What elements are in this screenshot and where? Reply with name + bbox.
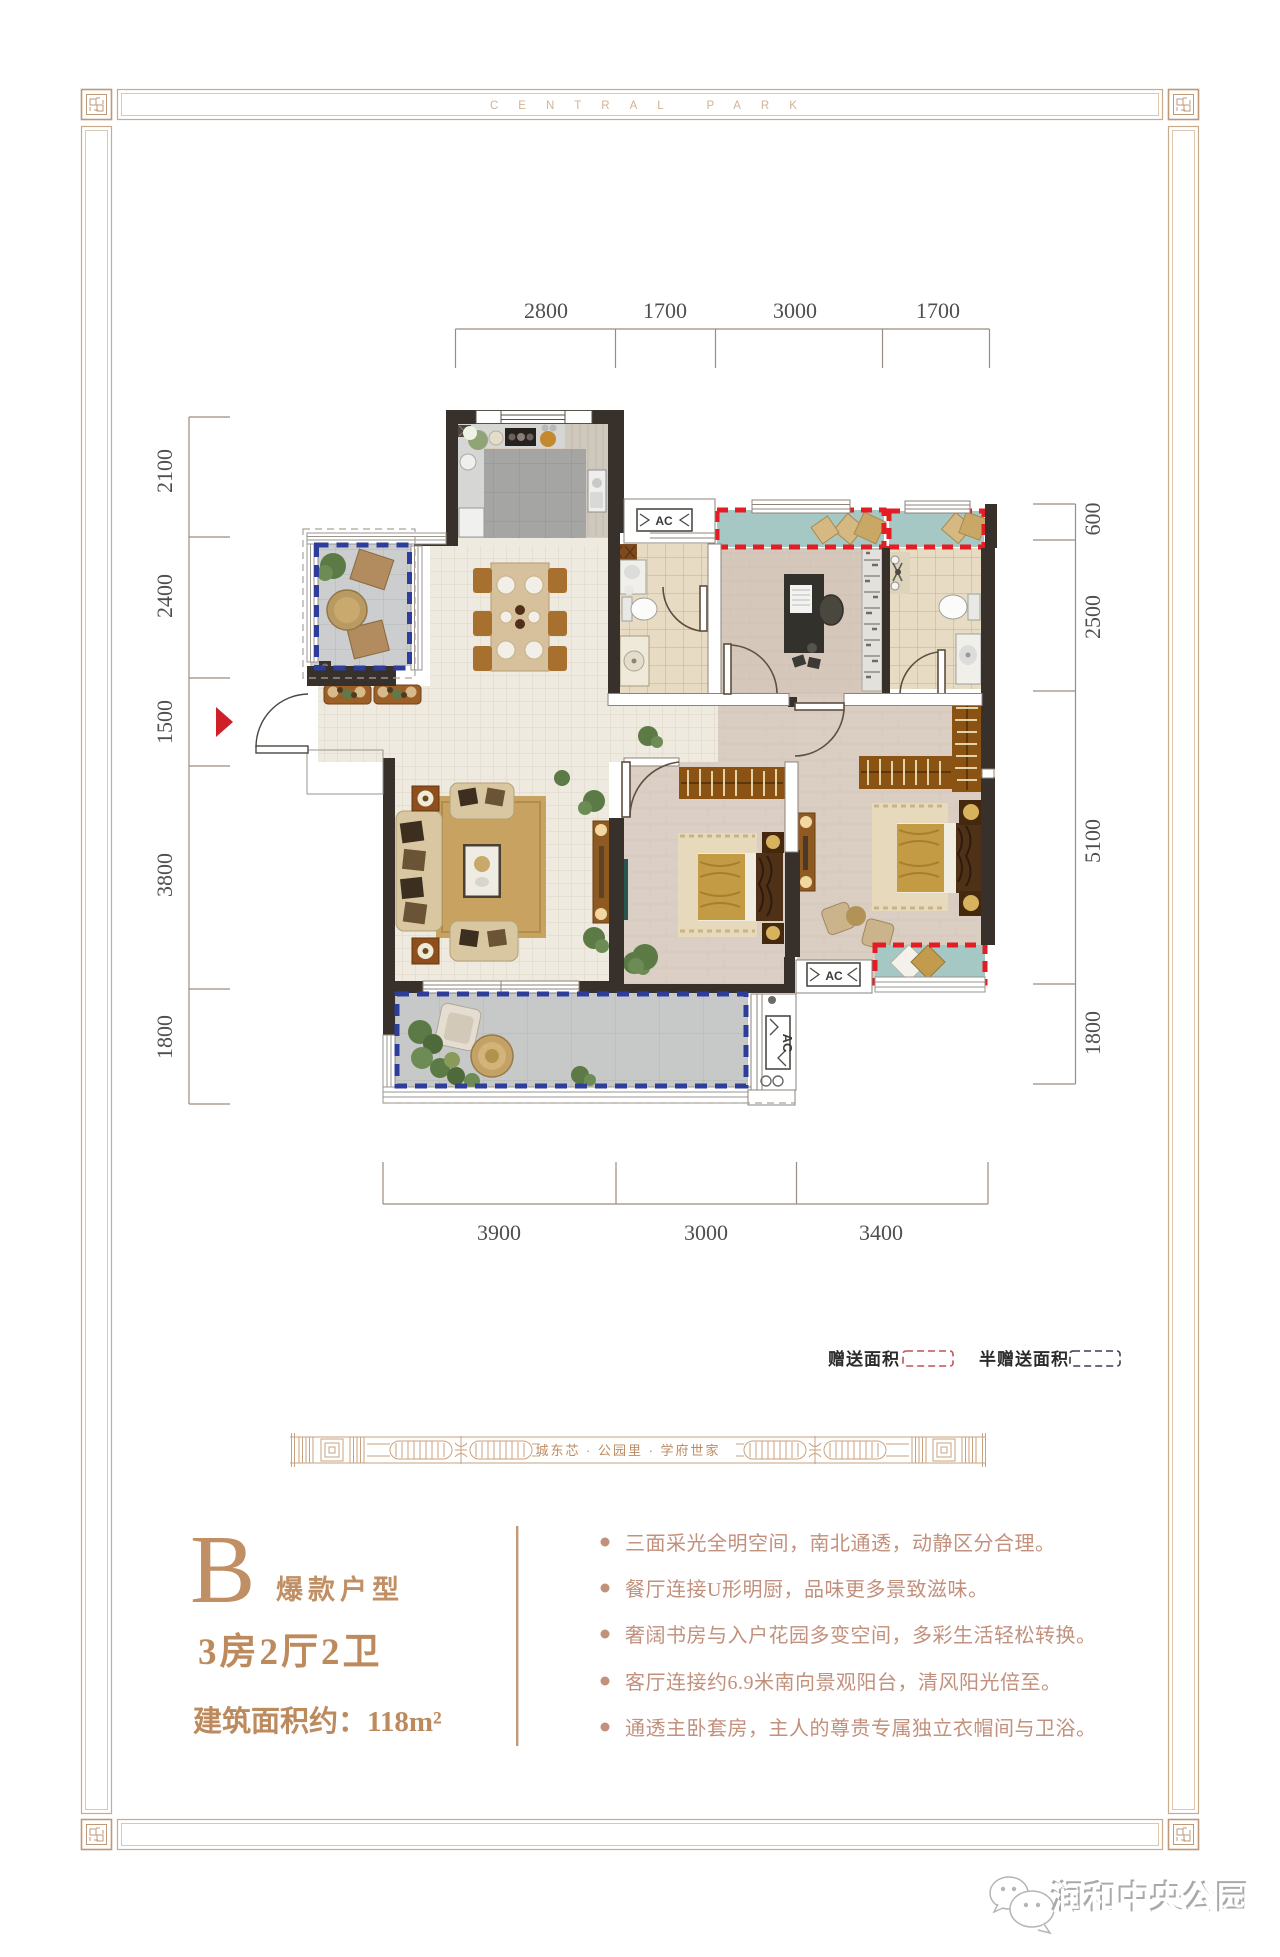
svg-text:三面采光全明空间，南北通透，动静区分合理。: 三面采光全明空间，南北通透，动静区分合理。	[625, 1532, 1056, 1555]
svg-text:爆款户型: 爆款户型	[276, 1574, 404, 1605]
svg-text:3000: 3000	[773, 298, 817, 323]
svg-text:城东芯 · 公园里 · 学府世家: 城东芯 · 公园里 · 学府世家	[535, 1443, 720, 1458]
svg-text:5100: 5100	[1080, 819, 1105, 863]
svg-text:1700: 1700	[643, 298, 687, 323]
svg-text:3800: 3800	[152, 853, 177, 897]
svg-text:AC: AC	[825, 969, 843, 983]
svg-text:600: 600	[1080, 503, 1105, 536]
svg-text:赠送面积: 赠送面积	[828, 1349, 900, 1369]
svg-text:2100: 2100	[152, 449, 177, 493]
svg-text:3房2厅2卫: 3房2厅2卫	[198, 1631, 383, 1673]
svg-text:CENTRAL PARK: CENTRAL PARK	[490, 100, 817, 112]
svg-text:1500: 1500	[152, 700, 177, 744]
svg-text:1700: 1700	[916, 298, 960, 323]
svg-text:润和中央公园: 润和中央公园	[1052, 1880, 1250, 1917]
svg-text:3000: 3000	[684, 1220, 728, 1245]
svg-text:3400: 3400	[859, 1220, 903, 1245]
svg-text:AC: AC	[655, 514, 673, 528]
svg-text:2500: 2500	[1080, 595, 1105, 639]
svg-text:餐厅连接U形明厨，品味更多景致滋味。: 餐厅连接U形明厨，品味更多景致滋味。	[625, 1578, 988, 1601]
svg-text:3900: 3900	[477, 1220, 521, 1245]
svg-text:半赠送面积: 半赠送面积	[979, 1349, 1069, 1369]
svg-text:客厅连接约6.9米南向景观阳台，清风阳光倍至。: 客厅连接约6.9米南向景观阳台，清风阳光倍至。	[625, 1671, 1062, 1694]
svg-text:奢阔书房与入户花园多变空间，多彩生活轻松转换。: 奢阔书房与入户花园多变空间，多彩生活轻松转换。	[625, 1624, 1097, 1647]
svg-text:B: B	[190, 1516, 255, 1624]
svg-text:1800: 1800	[152, 1015, 177, 1059]
svg-text:1800: 1800	[1080, 1011, 1105, 1055]
svg-text:AC: AC	[780, 1034, 795, 1053]
svg-text:通透主卧套房，主人的尊贵专属独立衣帽间与卫浴。: 通透主卧套房，主人的尊贵专属独立衣帽间与卫浴。	[625, 1717, 1097, 1740]
svg-text:2400: 2400	[152, 574, 177, 618]
svg-text:2800: 2800	[524, 298, 568, 323]
svg-text:建筑面积约：118m²: 建筑面积约：118m²	[193, 1705, 442, 1738]
